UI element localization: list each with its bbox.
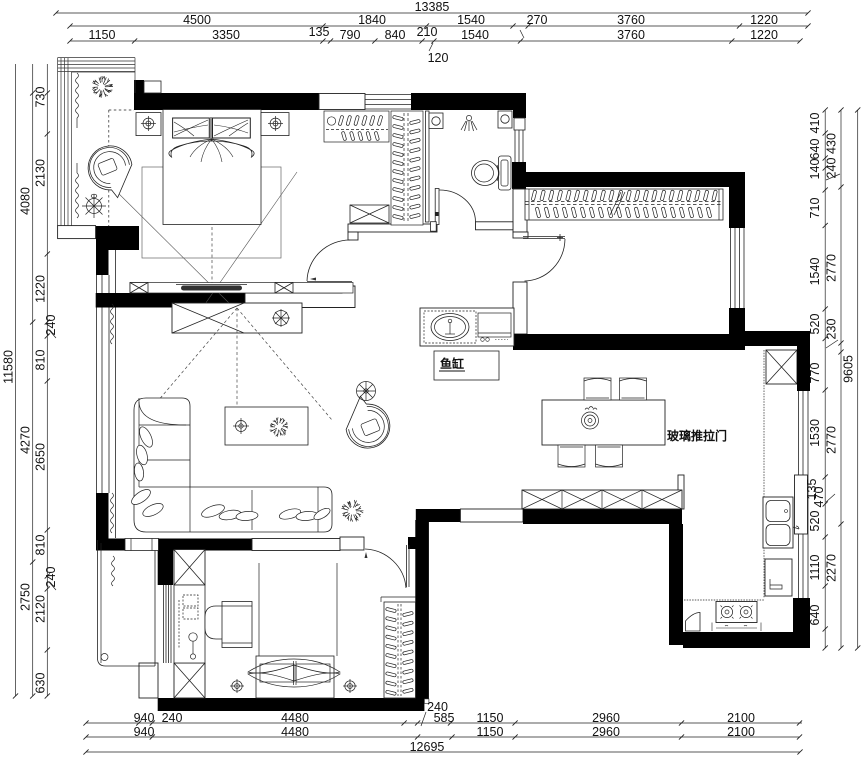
- svg-text:640: 640: [808, 139, 822, 160]
- svg-text:2100: 2100: [727, 725, 755, 739]
- svg-text:1110: 1110: [808, 554, 822, 580]
- svg-text:11580: 11580: [2, 350, 16, 384]
- svg-text:135: 135: [309, 25, 330, 39]
- svg-text:4480: 4480: [281, 711, 309, 725]
- svg-text:140: 140: [808, 159, 822, 180]
- svg-text:240: 240: [427, 700, 448, 714]
- svg-text:1530: 1530: [808, 419, 822, 447]
- svg-text:2270: 2270: [825, 554, 839, 582]
- svg-text:2960: 2960: [592, 725, 620, 739]
- svg-text:2120: 2120: [33, 595, 47, 623]
- svg-text:520: 520: [808, 511, 822, 532]
- svg-text:120: 120: [428, 51, 449, 65]
- svg-text:2100: 2100: [727, 711, 755, 725]
- svg-text:2650: 2650: [33, 443, 47, 471]
- svg-text:2770: 2770: [825, 426, 839, 454]
- svg-text:3350: 3350: [212, 28, 240, 42]
- svg-text:630: 630: [33, 673, 47, 694]
- svg-text:4500: 4500: [183, 13, 211, 27]
- svg-text:1220: 1220: [750, 13, 778, 27]
- svg-text:1150: 1150: [477, 711, 504, 725]
- svg-text:940: 940: [134, 711, 155, 725]
- svg-text:1220: 1220: [33, 275, 47, 303]
- svg-text:1540: 1540: [461, 28, 489, 42]
- svg-text:1540: 1540: [457, 13, 485, 27]
- svg-text:鱼缸: 鱼缸: [440, 356, 464, 371]
- svg-text:710: 710: [808, 198, 822, 219]
- svg-text:3760: 3760: [617, 13, 645, 27]
- svg-text:730: 730: [33, 87, 47, 108]
- svg-text:1150: 1150: [89, 28, 116, 42]
- svg-text:12695: 12695: [410, 740, 445, 754]
- svg-text:4080: 4080: [19, 187, 33, 215]
- svg-text:2130: 2130: [33, 159, 47, 187]
- svg-text:210: 210: [417, 25, 438, 39]
- svg-text:810: 810: [33, 350, 47, 371]
- svg-text:1540: 1540: [808, 258, 822, 286]
- svg-text:790: 790: [340, 28, 361, 42]
- svg-text:520: 520: [808, 314, 822, 335]
- svg-text:270: 270: [527, 13, 548, 27]
- svg-text:430: 430: [825, 133, 839, 154]
- svg-text:810: 810: [33, 535, 47, 556]
- svg-text:1150: 1150: [477, 725, 504, 739]
- svg-text:4270: 4270: [19, 426, 33, 454]
- svg-text:940: 940: [134, 725, 155, 739]
- svg-text:230: 230: [825, 319, 839, 340]
- svg-text:240: 240: [162, 711, 183, 725]
- svg-text:13385: 13385: [415, 0, 450, 14]
- svg-text:3760: 3760: [617, 28, 645, 42]
- svg-text:770: 770: [808, 363, 822, 384]
- svg-text:470: 470: [812, 487, 826, 508]
- svg-text:640: 640: [808, 605, 822, 626]
- svg-text:2750: 2750: [19, 583, 33, 611]
- svg-text:4480: 4480: [281, 725, 309, 739]
- svg-text:840: 840: [385, 28, 406, 42]
- svg-text:玻璃推拉门: 玻璃推拉门: [667, 428, 727, 443]
- svg-text:2960: 2960: [592, 711, 620, 725]
- svg-text:1840: 1840: [358, 13, 386, 27]
- svg-text:1220: 1220: [750, 28, 778, 42]
- svg-text:410: 410: [808, 113, 822, 134]
- svg-text:9605: 9605: [842, 355, 856, 383]
- svg-text:2770: 2770: [825, 254, 839, 282]
